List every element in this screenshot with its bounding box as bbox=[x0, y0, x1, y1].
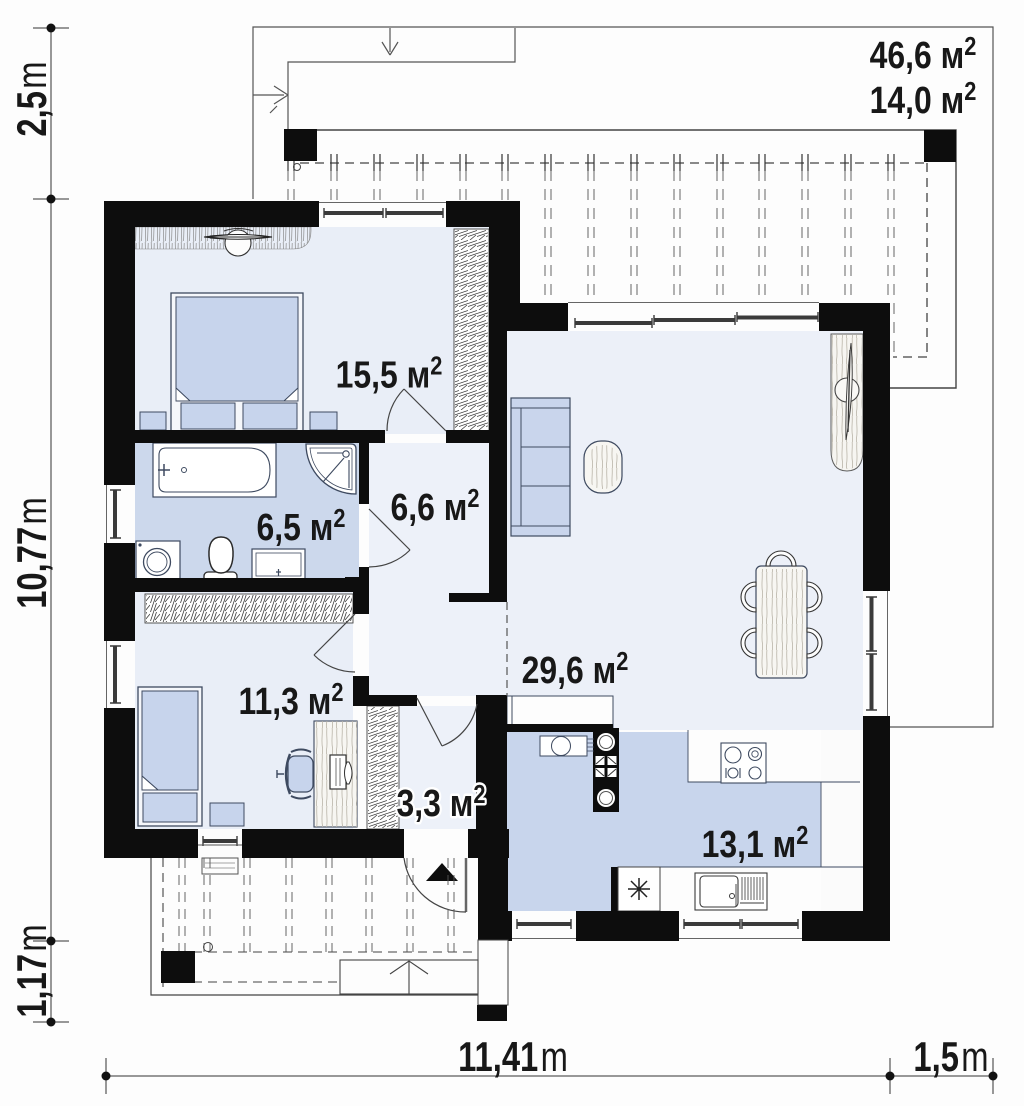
svg-text:2,5m: 2,5m bbox=[8, 61, 55, 136]
svg-text:10,77m: 10,77m bbox=[8, 497, 55, 609]
svg-text:15,5 м2: 15,5 м2 bbox=[336, 352, 443, 396]
svg-text:1,17m: 1,17m bbox=[8, 924, 55, 1017]
svg-text:13,1 м2: 13,1 м2 bbox=[702, 821, 809, 865]
svg-text:11,41m: 11,41m bbox=[458, 1033, 568, 1080]
svg-text:46,6 м2: 46,6 м2 bbox=[870, 32, 977, 76]
svg-text:6,6 м2: 6,6 м2 bbox=[391, 484, 480, 528]
svg-text:6,5 м2: 6,5 м2 bbox=[257, 504, 346, 548]
svg-text:3,3 м2: 3,3 м2 bbox=[397, 780, 486, 824]
svg-text:29,6 м2: 29,6 м2 bbox=[522, 647, 629, 691]
svg-text:1,5m: 1,5m bbox=[913, 1033, 988, 1080]
svg-text:14,0 м2: 14,0 м2 bbox=[870, 77, 977, 121]
svg-text:11,3 м2: 11,3 м2 bbox=[239, 678, 344, 722]
